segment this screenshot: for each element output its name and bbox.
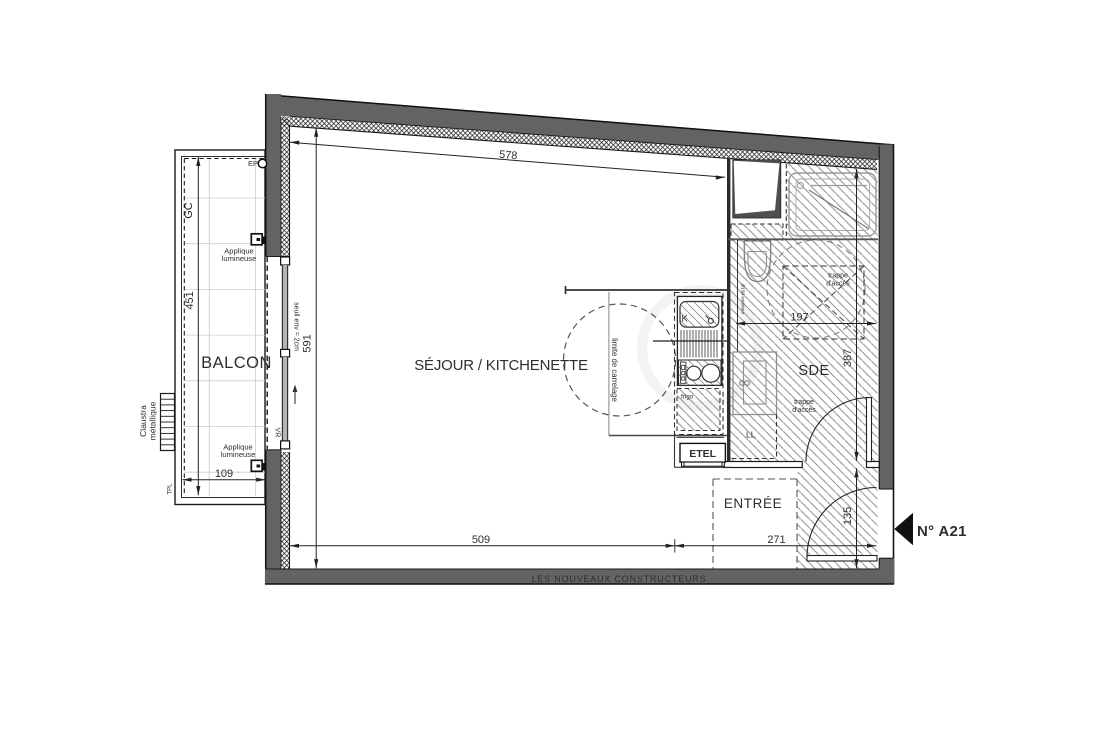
- svg-text:frigo: frigo: [681, 394, 694, 401]
- svg-text:limite de carrelage: limite de carrelage: [610, 338, 619, 402]
- svg-text:509: 509: [472, 534, 490, 546]
- svg-text:ENTRÉE: ENTRÉE: [724, 496, 782, 511]
- svg-text:trappe: trappe: [828, 273, 848, 280]
- svg-text:GC: GC: [183, 202, 195, 219]
- svg-text:trappe: trappe: [794, 399, 814, 406]
- svg-text:451: 451: [184, 291, 196, 309]
- svg-text:109: 109: [215, 468, 233, 480]
- svg-text:SÉJOUR / KITCHENETTE: SÉJOUR / KITCHENETTE: [414, 357, 588, 374]
- svg-text:Ø150 extérieur: Ø150 extérieur: [741, 284, 746, 315]
- svg-text:Claustra: Claustra: [138, 405, 148, 437]
- svg-text:271: 271: [767, 534, 785, 546]
- svg-text:N° A21: N° A21: [917, 523, 967, 540]
- svg-text:LL: LL: [746, 430, 756, 440]
- svg-text:135: 135: [842, 507, 854, 525]
- svg-text:d'accès: d'accès: [826, 281, 850, 288]
- svg-text:lumineuse: lumineuse: [221, 450, 256, 459]
- svg-text:SDE: SDE: [798, 363, 829, 379]
- svg-text:VR: VR: [274, 428, 281, 438]
- svg-text:TPL: TPL: [168, 483, 174, 495]
- svg-text:métallique: métallique: [148, 401, 158, 440]
- svg-text:lumineuse: lumineuse: [222, 254, 257, 263]
- svg-text:BALCON: BALCON: [201, 354, 272, 372]
- svg-text:K: K: [682, 314, 689, 325]
- svg-text:197: 197: [790, 312, 808, 324]
- svg-text:387: 387: [842, 349, 854, 367]
- svg-text:591: 591: [302, 334, 314, 352]
- svg-text:seuil env = 2cm: seuil env = 2cm: [293, 302, 300, 351]
- svg-text:578: 578: [499, 149, 518, 162]
- svg-text:EP: EP: [248, 159, 258, 168]
- svg-text:LES NOUVEAUX CONSTRUCTEURS: LES NOUVEAUX CONSTRUCTEURS: [532, 574, 707, 584]
- svg-text:ETEL: ETEL: [689, 448, 716, 460]
- svg-text:d'accès: d'accès: [792, 407, 816, 414]
